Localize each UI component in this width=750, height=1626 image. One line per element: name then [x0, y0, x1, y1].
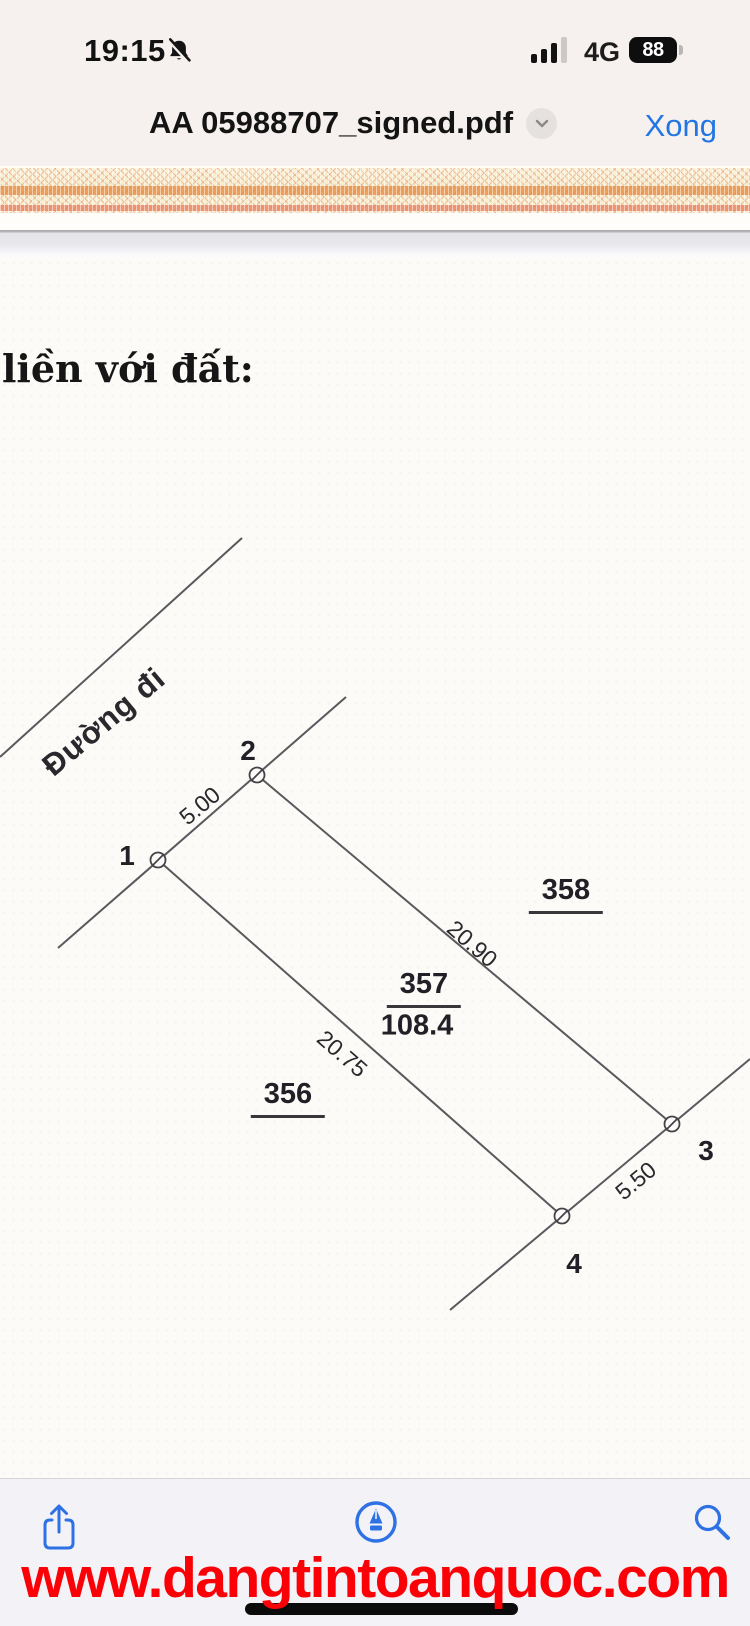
vertex-label-1: 1: [119, 840, 135, 872]
watermark-url: www.dangtintoanquoc.com: [0, 1545, 750, 1611]
vertex-label-4: 4: [566, 1248, 582, 1280]
parcel-number-358: 358: [529, 874, 603, 914]
search-icon: [690, 1500, 734, 1544]
battery-cap: [679, 45, 683, 55]
certificate-border-strip: [0, 168, 750, 213]
battery-icon: 88: [629, 37, 677, 63]
clock-time: 19:15: [84, 33, 166, 69]
page-separator: [0, 213, 750, 258]
chevron-down-icon: [533, 114, 551, 132]
battery-percent: 88: [642, 39, 663, 62]
document-heading: liền với đất:: [2, 346, 254, 391]
signal-strength-icon: [531, 37, 573, 68]
parcel-number-357: 357: [387, 968, 461, 1008]
vertex-label-2: 2: [240, 735, 256, 767]
done-button[interactable]: Xong: [645, 108, 717, 144]
markup-icon: [353, 1499, 399, 1545]
bell-slash-icon: [165, 37, 193, 70]
file-title: AA 05988707_signed.pdf: [149, 105, 513, 141]
markup-button[interactable]: [353, 1499, 399, 1550]
network-type-label: 4G: [584, 37, 620, 68]
parcel-357-area: 108.4: [381, 1010, 454, 1043]
pdf-page: [0, 258, 750, 1478]
status-bar: 19:15 4G 88: [0, 0, 750, 80]
title-bar: AA 05988707_signed.pdf: [0, 80, 750, 166]
file-options-button[interactable]: [526, 108, 557, 139]
parcel-number-356: 356: [251, 1078, 325, 1118]
search-button[interactable]: [690, 1500, 734, 1549]
vertex-label-3: 3: [698, 1135, 714, 1167]
